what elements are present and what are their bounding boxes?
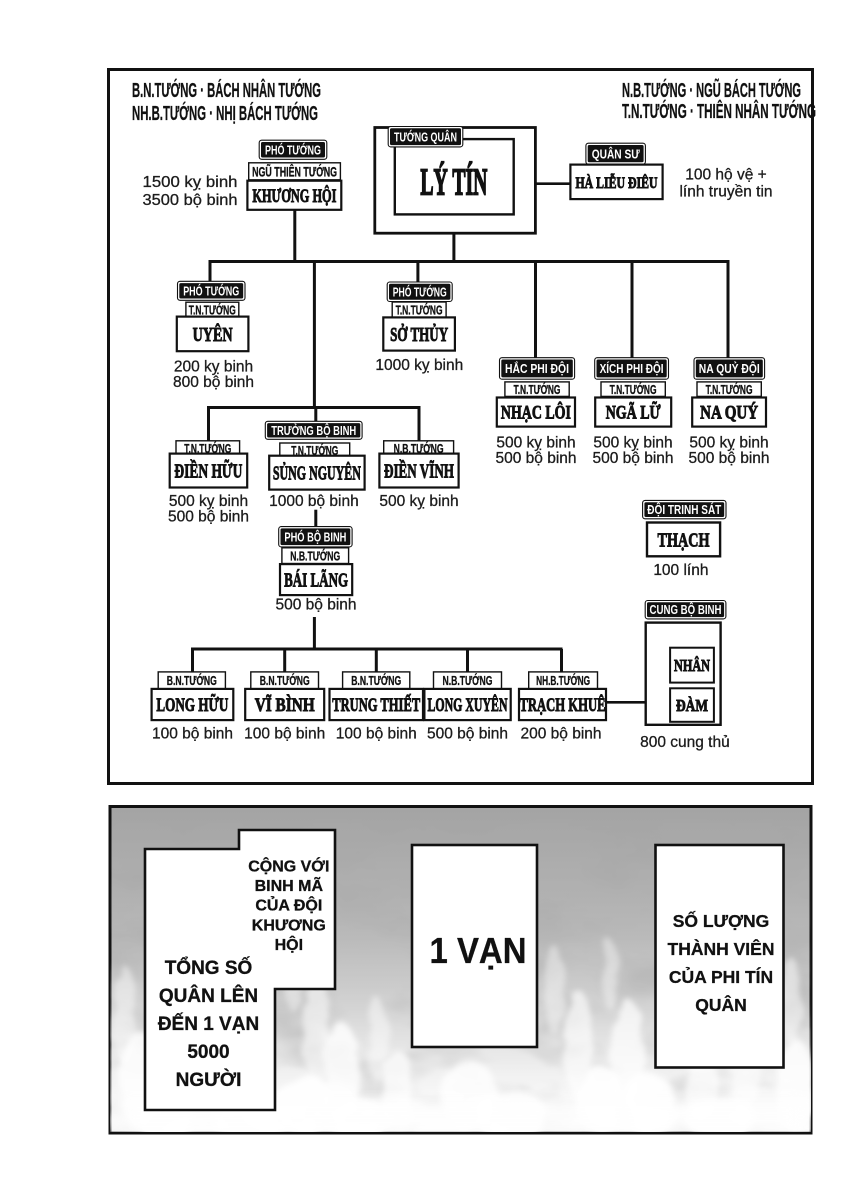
svg-text:SỞ THỦY: SỞ THỦY xyxy=(390,323,448,346)
svg-text:B.N.TƯỚNG: B.N.TƯỚNG xyxy=(351,673,401,688)
svg-text:T.N.TƯỚNG · THIÊN NHÂN TƯỚNG: T.N.TƯỚNG · THIÊN NHÂN TƯỚNG xyxy=(622,99,816,123)
svg-text:KHƯƠNG HỘI: KHƯƠNG HỘI xyxy=(252,185,336,207)
svg-text:200 bộ binh: 200 bộ binh xyxy=(520,725,601,742)
svg-text:CỦA PHI TÍN: CỦA PHI TÍN xyxy=(669,966,773,987)
svg-text:QUÂN SƯ: QUÂN SƯ xyxy=(592,146,640,161)
svg-text:1500 kỵ binh: 1500 kỵ binh xyxy=(143,174,238,191)
svg-text:THÀNH VIÊN: THÀNH VIÊN xyxy=(668,938,775,959)
svg-text:ĐẾN 1 VẠN: ĐẾN 1 VẠN xyxy=(158,1013,259,1035)
svg-text:SỦNG NGUYÊN: SỦNG NGUYÊN xyxy=(273,461,361,485)
svg-text:B.N.TƯỚNG: B.N.TƯỚNG xyxy=(260,673,310,688)
svg-text:100 hộ vệ +: 100 hộ vệ + xyxy=(685,167,766,184)
svg-text:CUNG BỘ BINH: CUNG BỘ BINH xyxy=(650,602,722,617)
svg-text:PHÓ TƯỚNG: PHÓ TƯỚNG xyxy=(183,283,239,298)
svg-text:T.N.TƯỚNG: T.N.TƯỚNG xyxy=(396,303,443,318)
svg-text:N.B.TƯỚNG · NGŨ BÁCH TƯỚNG: N.B.TƯỚNG · NGŨ BÁCH TƯỚNG xyxy=(622,78,801,102)
svg-text:100 bộ binh: 100 bộ binh xyxy=(244,725,325,742)
svg-text:TRUNG THIẾT: TRUNG THIẾT xyxy=(332,694,420,716)
svg-text:SỐ LƯỢNG: SỐ LƯỢNG xyxy=(673,910,770,931)
svg-text:T.N.TƯỚNG: T.N.TƯỚNG xyxy=(706,382,753,397)
svg-text:LONG XUYÊN: LONG XUYÊN xyxy=(428,694,508,716)
svg-text:HÀ LIỄU ĐIÊU: HÀ LIỄU ĐIÊU xyxy=(576,173,658,192)
svg-text:T.N.TƯỚNG: T.N.TƯỚNG xyxy=(514,382,561,397)
svg-text:B.N.TƯỚNG: B.N.TƯỚNG xyxy=(167,673,217,688)
svg-text:lính truyền tin: lính truyền tin xyxy=(679,184,772,201)
svg-text:100 bộ binh: 100 bộ binh xyxy=(336,725,417,742)
svg-text:NH.B.TƯỚNG · NHỊ BÁCH TƯỚNG: NH.B.TƯỚNG · NHỊ BÁCH TƯỚNG xyxy=(132,101,318,125)
svg-text:3500 bộ binh: 3500 bộ binh xyxy=(143,192,238,209)
svg-text:HỘI: HỘI xyxy=(275,935,303,954)
svg-text:B.N.TƯỚNG · BÁCH NHÂN TƯỚNG: B.N.TƯỚNG · BÁCH NHÂN TƯỚNG xyxy=(132,78,321,102)
svg-text:NGƯỜI: NGƯỜI xyxy=(176,1069,242,1091)
svg-text:XÍCH PHI ĐỘI: XÍCH PHI ĐỘI xyxy=(600,361,664,376)
svg-text:NHÂN: NHÂN xyxy=(674,656,711,675)
svg-text:TƯỚNG QUÂN: TƯỚNG QUÂN xyxy=(394,129,457,144)
svg-text:PHÓ TƯỚNG: PHÓ TƯỚNG xyxy=(393,284,447,299)
svg-text:CỦA ĐỘI: CỦA ĐỘI xyxy=(255,896,322,915)
svg-text:ĐIỀN HỮU: ĐIỀN HỮU xyxy=(174,459,242,483)
svg-text:500 kỵ binh: 500 kỵ binh xyxy=(496,435,575,452)
svg-text:T.N.TƯỚNG: T.N.TƯỚNG xyxy=(610,382,657,397)
svg-text:TRẠCH KHUÊ: TRẠCH KHUÊ xyxy=(520,694,606,716)
svg-text:200 kỵ binh: 200 kỵ binh xyxy=(174,359,253,376)
svg-text:500 bộ binh: 500 bộ binh xyxy=(592,450,673,467)
svg-text:NGŨ THIÊN TƯỚNG: NGŨ THIÊN TƯỚNG xyxy=(252,162,337,179)
svg-text:5000: 5000 xyxy=(187,1042,229,1063)
svg-text:500 kỵ binh: 500 kỵ binh xyxy=(379,493,458,510)
svg-text:NHẠC LÔI: NHẠC LÔI xyxy=(501,402,571,424)
svg-text:800 bộ binh: 800 bộ binh xyxy=(173,374,254,391)
svg-text:500 bộ binh: 500 bộ binh xyxy=(427,725,508,742)
svg-text:THẠCH: THẠCH xyxy=(658,529,710,551)
svg-text:BINH MÃ: BINH MÃ xyxy=(255,875,324,895)
svg-text:BÁI LÃNG: BÁI LÃNG xyxy=(284,569,348,592)
svg-text:1000 bộ binh: 1000 bộ binh xyxy=(269,493,359,510)
svg-text:500 bộ binh: 500 bộ binh xyxy=(688,450,769,467)
svg-text:PHÓ BỘ BINH: PHÓ BỘ BINH xyxy=(284,529,346,544)
svg-text:100 bộ binh: 100 bộ binh xyxy=(152,725,233,742)
svg-text:PHÓ TƯỚNG: PHÓ TƯỚNG xyxy=(265,142,321,157)
svg-text:NGÃ LỮ: NGÃ LỮ xyxy=(606,402,661,424)
svg-text:N.B.TƯỚNG: N.B.TƯỚNG xyxy=(290,548,340,563)
svg-text:1000 kỵ binh: 1000 kỵ binh xyxy=(375,357,463,374)
svg-text:UYÊN: UYÊN xyxy=(193,322,233,346)
svg-text:KHƯƠNG: KHƯƠNG xyxy=(252,917,326,934)
svg-text:1 VẠN: 1 VẠN xyxy=(430,930,527,971)
svg-text:CỘNG VỚI: CỘNG VỚI xyxy=(248,857,329,876)
svg-text:ĐỘI TRINH SÁT: ĐỘI TRINH SÁT xyxy=(647,502,721,517)
svg-text:100 lính: 100 lính xyxy=(653,562,708,579)
svg-text:500 kỵ binh: 500 kỵ binh xyxy=(169,493,248,510)
svg-text:T.N.TƯỚNG: T.N.TƯỚNG xyxy=(189,303,236,318)
svg-text:N.B.TƯỚNG: N.B.TƯỚNG xyxy=(443,673,493,688)
svg-text:800 cung thủ: 800 cung thủ xyxy=(640,734,730,751)
svg-text:LONG HỮU: LONG HỮU xyxy=(156,694,228,716)
svg-text:NA QUÝ: NA QUÝ xyxy=(700,402,758,424)
svg-text:500 bộ binh: 500 bộ binh xyxy=(275,597,356,614)
svg-text:VĨ BÌNH: VĨ BÌNH xyxy=(255,694,315,716)
svg-text:QUÂN: QUÂN xyxy=(695,994,747,1015)
svg-text:HẮC PHI ĐỘI: HẮC PHI ĐỘI xyxy=(505,361,569,376)
svg-text:500 bộ binh: 500 bộ binh xyxy=(168,509,249,526)
svg-text:ĐIỀN VĨNH: ĐIỀN VĨNH xyxy=(384,459,454,483)
svg-text:TRƯỞNG BỘ BINH: TRƯỞNG BỘ BINH xyxy=(271,423,356,438)
svg-text:QUÂN LÊN: QUÂN LÊN xyxy=(159,985,258,1007)
svg-text:ĐÀM: ĐÀM xyxy=(676,696,708,715)
svg-text:500 bộ binh: 500 bộ binh xyxy=(495,450,576,467)
svg-text:NH.B.TƯỚNG: NH.B.TƯỚNG xyxy=(536,673,590,688)
svg-text:500 kỵ binh: 500 kỵ binh xyxy=(593,435,672,452)
svg-text:LÝ TÍN: LÝ TÍN xyxy=(420,162,487,204)
svg-text:NA QUỶ ĐỘI: NA QUỶ ĐỘI xyxy=(699,361,760,376)
svg-text:TỔNG SỐ: TỔNG SỐ xyxy=(165,957,253,979)
svg-text:500 kỵ binh: 500 kỵ binh xyxy=(689,435,768,452)
